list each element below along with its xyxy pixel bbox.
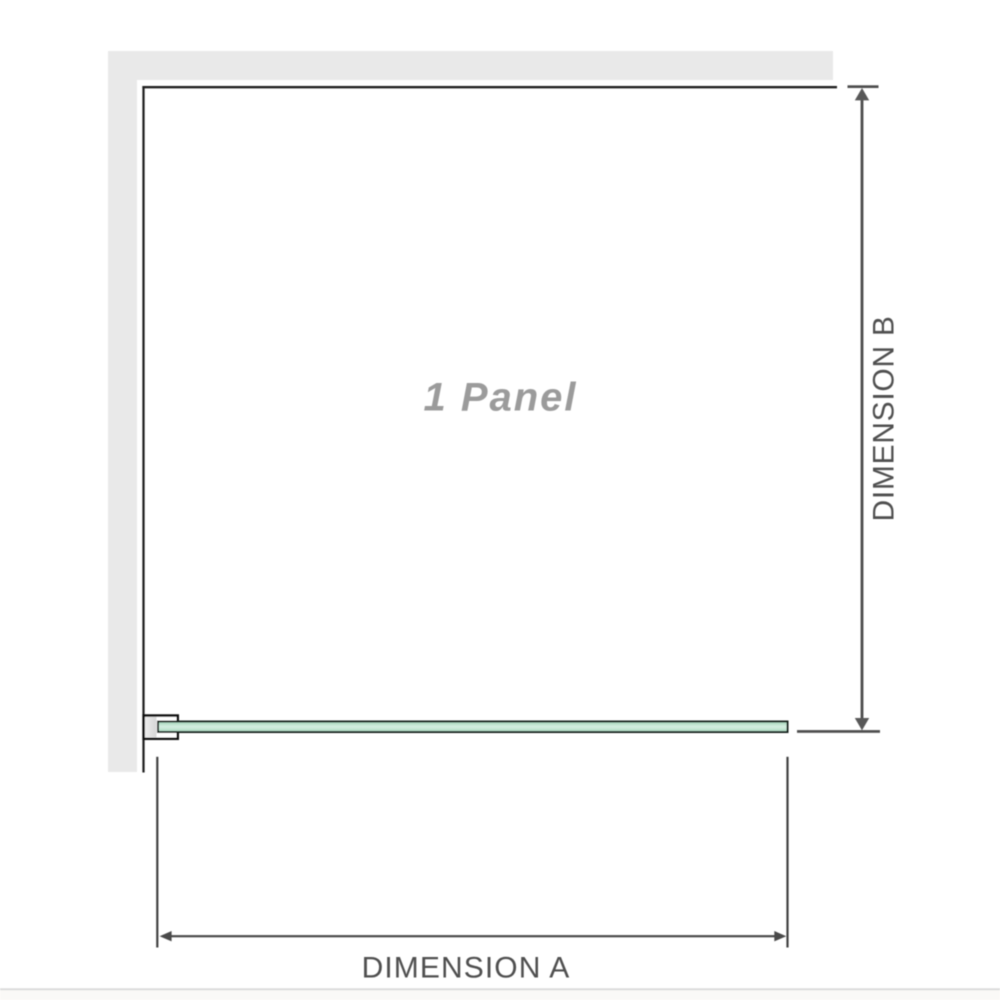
svg-text:DIMENSION A: DIMENSION A	[362, 952, 571, 985]
svg-text:1 Panel: 1 Panel	[423, 376, 577, 420]
svg-text:DIMENSION B: DIMENSION B	[868, 315, 901, 521]
